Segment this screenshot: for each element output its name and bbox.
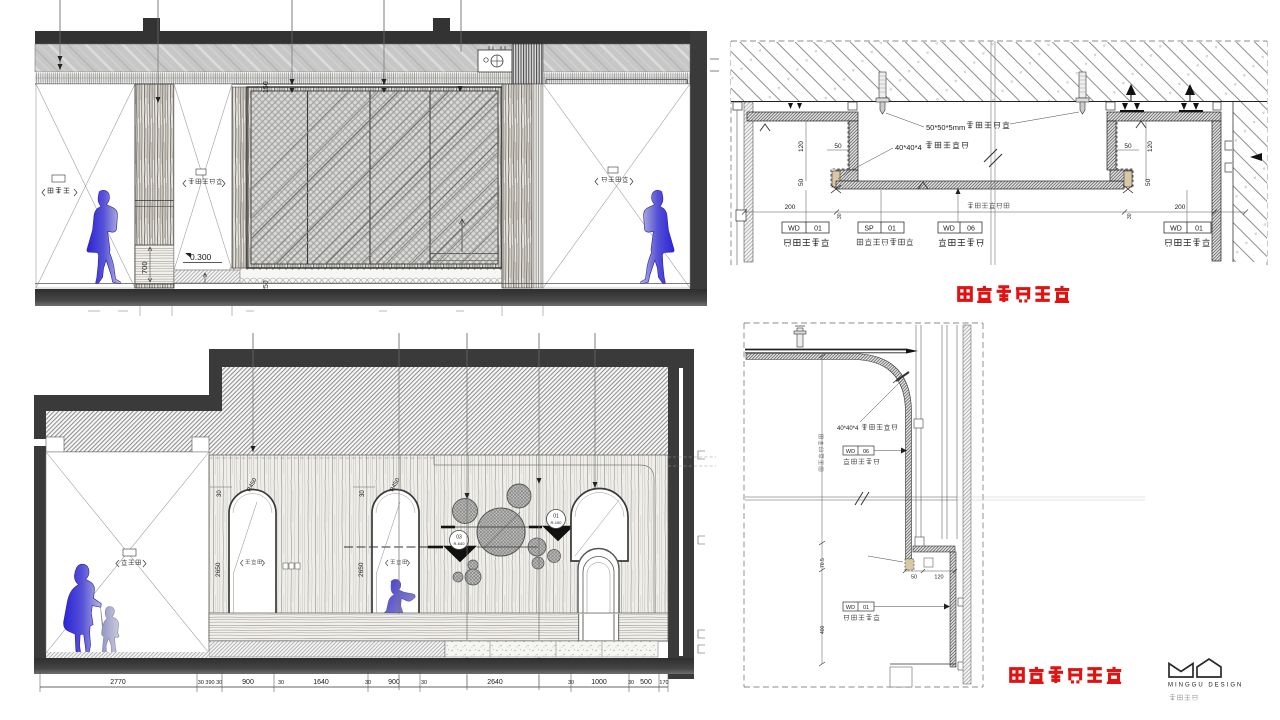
svg-text:150: 150 xyxy=(263,81,270,93)
svg-text:50: 50 xyxy=(834,143,842,150)
svg-text:WD: WD xyxy=(846,605,855,611)
svg-text:30: 30 xyxy=(278,680,284,686)
svg-text:170: 170 xyxy=(659,680,668,686)
svg-text:30: 30 xyxy=(568,680,574,686)
svg-text:30: 30 xyxy=(217,490,223,497)
svg-text:01: 01 xyxy=(553,514,559,520)
svg-text:70.5: 70.5 xyxy=(820,558,826,568)
svg-text:50: 50 xyxy=(1124,143,1132,150)
svg-text:50*50*5mm: 50*50*5mm xyxy=(926,123,965,132)
svg-text:30: 30 xyxy=(365,680,371,686)
svg-text:MINGGU DESIGN: MINGGU DESIGN xyxy=(1168,683,1243,689)
svg-text:06: 06 xyxy=(967,226,975,233)
svg-text:40*40*4: 40*40*4 xyxy=(837,426,859,432)
svg-text:120: 120 xyxy=(798,141,805,152)
svg-text:SP: SP xyxy=(864,226,874,233)
svg-text:1000: 1000 xyxy=(591,679,607,686)
svg-text:2650: 2650 xyxy=(358,562,365,577)
svg-text:200: 200 xyxy=(785,204,796,211)
svg-text:2770: 2770 xyxy=(110,679,126,686)
svg-text:30: 30 xyxy=(360,490,366,497)
svg-text:30: 30 xyxy=(421,680,427,686)
svg-text:30: 30 xyxy=(1127,213,1133,219)
svg-text:WD: WD xyxy=(1170,226,1182,233)
svg-text:30 390 30: 30 390 30 xyxy=(198,680,222,686)
svg-text:700: 700 xyxy=(140,261,149,274)
svg-text:30: 30 xyxy=(837,213,843,219)
svg-text:200: 200 xyxy=(1175,204,1186,211)
svg-text:R-640: R-640 xyxy=(454,541,466,546)
svg-text:50: 50 xyxy=(798,178,805,186)
svg-text:01: 01 xyxy=(814,226,822,233)
svg-text:400: 400 xyxy=(820,625,826,634)
svg-text:1640: 1640 xyxy=(313,679,329,686)
svg-text:R-150: R-150 xyxy=(551,520,563,525)
svg-text:900: 900 xyxy=(242,679,254,686)
svg-text:40*40*4: 40*40*4 xyxy=(895,143,922,152)
svg-text:2650: 2650 xyxy=(215,562,222,577)
svg-text:WD: WD xyxy=(846,449,855,455)
svg-text:2640: 2640 xyxy=(487,679,503,686)
svg-text:03: 03 xyxy=(456,535,462,541)
svg-text:01: 01 xyxy=(888,226,896,233)
svg-text:120: 120 xyxy=(934,575,943,581)
svg-text:120: 120 xyxy=(1147,141,1154,152)
svg-text:30: 30 xyxy=(628,680,634,686)
svg-text:WD: WD xyxy=(943,226,955,233)
svg-text:06: 06 xyxy=(863,449,869,455)
svg-text:0.300: 0.300 xyxy=(190,252,212,262)
svg-text:01: 01 xyxy=(863,605,869,611)
svg-text:500: 500 xyxy=(640,679,652,686)
svg-text:50: 50 xyxy=(911,575,917,581)
svg-text:900: 900 xyxy=(388,679,400,686)
svg-text:50: 50 xyxy=(1145,178,1152,186)
svg-text:WD: WD xyxy=(788,226,800,233)
svg-text:01: 01 xyxy=(1195,226,1203,233)
